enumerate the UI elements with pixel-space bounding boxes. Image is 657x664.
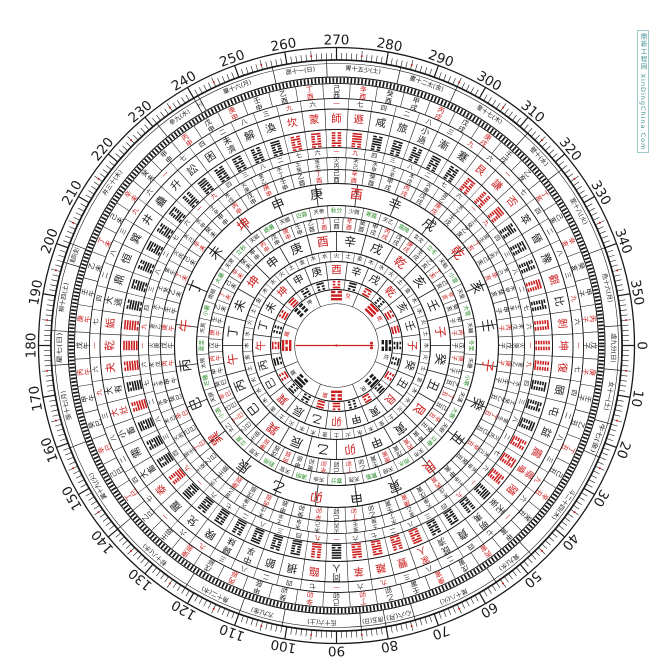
cell-divider [315, 294, 321, 307]
cell-divider [161, 354, 175, 355]
cell-divider [218, 199, 226, 208]
hexagram-name: 需 [129, 445, 145, 460]
jiazi-cell: 子 [498, 342, 506, 348]
cell-divider [604, 369, 621, 370]
tick [177, 585, 181, 590]
mansion-label: 昴十一(日) [285, 65, 315, 77]
cell-divider [253, 335, 271, 337]
tick [103, 169, 108, 173]
guayun-number: 七 [142, 380, 151, 387]
tick [232, 72, 234, 78]
cell-divider [378, 502, 382, 516]
mountain-man: 丑 [424, 377, 442, 393]
tick [505, 577, 509, 582]
cell-divider [114, 266, 133, 273]
tick [126, 544, 131, 549]
guayun-number: 四 [295, 531, 302, 539]
cell-divider [349, 592, 350, 607]
cell-divider [141, 373, 151, 374]
cell-divider [235, 541, 244, 560]
tick [605, 244, 616, 248]
cell-divider [495, 162, 502, 170]
mountain-earth: 壬 [402, 319, 416, 332]
yin-line [539, 321, 542, 331]
mountain-man: 戌 [368, 240, 384, 258]
tick [43, 395, 55, 397]
tick [65, 236, 71, 238]
cell-divider [364, 531, 365, 541]
cell-divider [197, 336, 209, 337]
mountain-heaven: 卯 [309, 487, 324, 504]
cell-divider [559, 262, 569, 266]
element-cell: 土 [333, 432, 339, 440]
cell-divider [307, 436, 312, 455]
cell-divider [330, 252, 331, 262]
yin-line [332, 135, 342, 137]
cell-divider [507, 297, 519, 300]
cell-divider [392, 337, 402, 338]
yin-line [311, 138, 321, 141]
heaven-star: 少微 [348, 207, 360, 216]
degree-label: 250 [217, 47, 247, 71]
yin-line [285, 340, 287, 351]
cell-divider [534, 355, 552, 356]
tick [271, 624, 272, 630]
cell-divider [473, 456, 482, 464]
cell-divider [303, 222, 307, 236]
cell-divider [352, 384, 358, 397]
cell-divider [307, 519, 309, 531]
cell-divider [514, 279, 523, 282]
yin-line [332, 547, 342, 549]
heaven-star: 天命 [312, 475, 324, 484]
cell-divider [194, 126, 202, 139]
tick [285, 52, 287, 64]
tick [78, 197, 88, 203]
jiazi-cell: 卯 [321, 459, 328, 468]
cell-divider [348, 582, 349, 592]
cell-divider [488, 228, 496, 234]
yang-line [332, 550, 342, 552]
cell-divider [403, 532, 409, 549]
tick [619, 390, 625, 391]
tick [133, 135, 138, 140]
cell-divider [528, 501, 540, 510]
guayun-number: 六 [309, 100, 317, 110]
cell-divider [464, 336, 476, 337]
jiazi-cell: 丑 [559, 442, 569, 452]
guayun-number: 一 [333, 583, 340, 591]
cell-divider [506, 261, 515, 265]
tick [568, 174, 573, 178]
yang-line [352, 138, 362, 141]
jiazi-cell: 卯 [333, 460, 339, 468]
cell-divider [244, 150, 252, 166]
yin-line [382, 340, 384, 351]
tick [579, 497, 585, 500]
cell-divider [264, 532, 270, 549]
guayun-number: 三 [446, 127, 456, 137]
cell-divider [309, 471, 311, 483]
hexagram-name: 坤 [557, 340, 570, 351]
guayun-number: 四 [492, 234, 501, 243]
tick-red-dot [502, 582, 504, 584]
degree-label: 180 [24, 333, 40, 359]
cell-divider [516, 133, 527, 146]
cell-divider [194, 553, 202, 566]
cell-divider [546, 398, 566, 403]
tick [145, 561, 149, 566]
guayun-number: 四 [95, 294, 104, 302]
tick-red-dot [625, 370, 627, 372]
tick-red-dot [98, 178, 100, 180]
cell-divider [238, 393, 255, 403]
cell-divider [520, 542, 532, 554]
jiazi-cell: 酉 [321, 224, 328, 232]
tick [559, 161, 564, 165]
cell-divider [495, 521, 502, 529]
cell-divider [462, 318, 474, 320]
yang-line [317, 403, 325, 407]
mountain-earth: 癸 [402, 358, 417, 372]
tick-red-dot [502, 107, 504, 109]
yang-line [332, 557, 342, 559]
hexagram-name: 蹇 [455, 148, 471, 165]
hexagram-name: 姤 [105, 317, 118, 329]
cell-divider [179, 243, 189, 250]
tick [582, 195, 588, 198]
element-cell: 水 [403, 396, 413, 406]
yin-line [311, 556, 321, 559]
tick [91, 501, 96, 505]
cell-divider [235, 507, 240, 516]
cell-divider [347, 109, 348, 129]
guayun-number: 九 [379, 578, 388, 588]
jiazi-cell: 巳 [103, 442, 113, 452]
guayun-number: 一 [574, 342, 582, 349]
cell-divider [567, 434, 581, 439]
hexagram-name: 夬 [104, 361, 118, 373]
hexagram-name: 升 [168, 177, 184, 193]
nayin-cell: 庚 [512, 343, 520, 349]
jiazi-cell: 子 [450, 330, 458, 337]
yin-line [544, 361, 547, 371]
cell-divider [573, 333, 583, 334]
tick [141, 128, 145, 133]
tick-red-dot [616, 420, 618, 422]
yang-line [289, 340, 291, 351]
cell-divider [361, 436, 366, 455]
tick-red-dot [213, 81, 215, 83]
cell-divider [381, 305, 389, 311]
guayun-number: 三 [563, 271, 573, 280]
yin-line [537, 361, 540, 371]
heaven-star: 天棓 [381, 464, 395, 476]
tick [546, 146, 551, 150]
cell-divider [244, 362, 254, 364]
guayun-number: 六 [573, 318, 583, 326]
cell-divider [358, 285, 362, 294]
cell-divider [189, 434, 201, 442]
mountain-heaven: 甲 [349, 487, 364, 504]
mountain-earth: 辛 [349, 264, 363, 279]
guayun-number: 二 [402, 109, 411, 119]
cell-divider [523, 273, 540, 279]
jiazi-cell: 辰 [230, 568, 240, 578]
degree-label: 90 [328, 643, 345, 659]
cell-divider [123, 375, 141, 378]
yin-line [534, 321, 537, 331]
mansion-label: 井三十(木) [100, 168, 124, 197]
yin-line [539, 361, 542, 371]
tick [67, 231, 73, 234]
cell-divider [252, 515, 256, 524]
yin-line [331, 398, 342, 400]
cell-divider [251, 178, 256, 189]
tick-red-dot [72, 467, 74, 469]
cell-divider [421, 524, 429, 540]
cell-divider [388, 320, 397, 324]
cell-divider [213, 375, 227, 379]
guayun-number: 九 [525, 361, 534, 368]
cell-divider [204, 470, 212, 478]
hexagram-name: 剝 [555, 317, 568, 329]
tick [145, 125, 149, 130]
tick [620, 385, 626, 386]
mountain-man: 辛 [343, 234, 357, 249]
yang-line [352, 553, 362, 556]
cell-divider [389, 116, 394, 136]
mountain-heaven: 乾 [447, 244, 467, 263]
cell-divider [327, 206, 328, 218]
element-cell: 水 [377, 263, 386, 273]
cell-divider [418, 393, 435, 403]
hexagram-name: 離 [374, 561, 387, 576]
tick [88, 497, 94, 500]
tick-red-dot [130, 550, 132, 552]
cell-divider [285, 361, 298, 367]
tick [587, 484, 593, 487]
hexagram-name: 比 [552, 295, 567, 308]
tick [492, 100, 496, 105]
cell-divider [493, 260, 504, 265]
degree-label: 120 [169, 596, 199, 623]
cell-divider [522, 373, 532, 374]
guayun-number: 六 [356, 582, 364, 592]
tick [119, 150, 124, 154]
cell-divider [226, 316, 245, 321]
yin-line [535, 341, 537, 351]
tick-red-dot [573, 178, 575, 180]
cell-divider [450, 351, 464, 352]
trigram-name: 震 [321, 391, 328, 399]
tick [406, 623, 408, 629]
hexagram-name: 艮 [472, 162, 488, 178]
tick [430, 69, 432, 75]
tick [137, 555, 141, 560]
cell-divider [570, 380, 580, 382]
mountain-earth: 卯 [331, 415, 342, 427]
cell-divider [316, 219, 318, 233]
tick [218, 78, 221, 84]
cell-divider [155, 297, 167, 300]
mansion-label: 胃十五少(土) [345, 64, 381, 75]
tick [618, 294, 630, 296]
cell-divider [481, 266, 493, 272]
mansion-label: 翼十九(火) [87, 471, 109, 501]
cell-divider [529, 293, 546, 297]
tick [152, 118, 156, 123]
jiazi-cell: 酉 [308, 226, 315, 234]
cell-divider [311, 285, 315, 294]
element-cell: 木 [410, 296, 420, 305]
cell-divider [141, 253, 157, 261]
cell-divider [107, 288, 127, 293]
tick [615, 280, 621, 281]
tick-red-dot [98, 511, 100, 513]
mountain-heaven: 巽 [206, 428, 226, 447]
cell-divider [519, 391, 529, 393]
mountain-heaven: 亥 [467, 279, 486, 297]
mountain-heaven: 子 [478, 358, 495, 373]
tick [46, 380, 52, 381]
tick [589, 208, 595, 211]
cell-divider [330, 459, 331, 473]
jiazi-cell: 午 [214, 330, 223, 337]
tick [56, 443, 67, 447]
cell-divider [257, 490, 263, 502]
cell-divider [532, 314, 550, 317]
cell-divider [570, 309, 580, 311]
tick [119, 537, 124, 541]
yang-line [534, 360, 537, 370]
tick [123, 541, 128, 545]
guayun-number: 八 [154, 268, 163, 276]
cell-divider [180, 266, 192, 272]
degree-label: 50 [521, 567, 544, 590]
cell-divider [498, 442, 507, 447]
degree-label: 150 [59, 483, 86, 513]
mountain-man: 甲 [368, 433, 384, 451]
guayun-number: 一 [468, 204, 477, 213]
cell-divider [209, 351, 223, 352]
heaven-star: 太微 [198, 357, 207, 369]
nayin-cell: 丙 [334, 163, 340, 170]
guayun-number: 七 [309, 582, 317, 592]
tick [137, 132, 141, 137]
tick-red-dot [169, 582, 171, 584]
tick [401, 624, 402, 630]
jiazi-cell: 卯 [345, 459, 352, 468]
cell-divider [449, 112, 456, 125]
degree-label: 0 [634, 341, 650, 350]
cell-divider [476, 213, 483, 220]
yin-line [312, 145, 322, 148]
cell-divider [291, 467, 295, 478]
cell-divider [361, 235, 366, 254]
yin-line [331, 291, 342, 293]
jiazi-cell: 卯 [308, 457, 316, 466]
guayun-number: 八 [510, 415, 519, 423]
tick [574, 182, 579, 186]
tick-red-dot [72, 222, 74, 224]
cell-divider [519, 297, 529, 299]
cell-divider [371, 293, 377, 301]
tick [396, 59, 397, 65]
mountain-earth: 丑 [394, 376, 410, 392]
yin-line [376, 299, 383, 306]
yin-line [544, 320, 547, 330]
mansion-label: 奎十七(木) [475, 103, 504, 126]
tick [50, 405, 56, 406]
cell-divider [493, 300, 507, 304]
cell-divider [550, 311, 570, 314]
tick [76, 213, 82, 216]
cell-divider [243, 351, 253, 352]
tick [160, 112, 164, 117]
guayun-number: 三 [389, 157, 397, 165]
tick [46, 375, 52, 376]
cell-divider [234, 188, 241, 198]
cell-divider [285, 324, 298, 330]
guayun-number: 二 [517, 286, 525, 294]
cell-divider [375, 324, 388, 330]
cell-divider [269, 92, 273, 106]
cell-divider [362, 172, 364, 186]
cell-divider [316, 458, 318, 472]
hexagram-name: 同 [332, 572, 341, 582]
guayun-number: 三 [148, 286, 156, 294]
cell-divider [358, 397, 362, 406]
yang-line [128, 341, 130, 351]
yang-line [331, 294, 342, 296]
cell-divider [138, 198, 146, 204]
jiazi-cell: 酉 [345, 224, 352, 232]
heaven-star: 天帝 [313, 207, 325, 216]
cell-divider [288, 153, 290, 163]
cell-divider [284, 538, 288, 555]
cell-divider [327, 60, 328, 77]
yin-line [312, 548, 322, 551]
mountain-heaven: 辰 [235, 456, 254, 476]
cell-divider [138, 486, 146, 492]
tick [562, 165, 567, 169]
cell-divider [400, 584, 404, 598]
tick [199, 87, 202, 93]
cell-divider [103, 377, 123, 380]
cell-divider [307, 150, 308, 160]
tick [55, 265, 61, 267]
mountain-man: 丙 [231, 377, 249, 393]
cell-divider [276, 320, 285, 324]
yin-line [317, 285, 325, 289]
element-cell: 火 [419, 319, 426, 326]
element-cell: 木 [260, 395, 270, 405]
yin-line [275, 342, 277, 350]
cell-divider [403, 142, 409, 159]
tick [582, 493, 588, 496]
tick [589, 480, 595, 483]
guayun-number: 一 [468, 477, 477, 486]
tick-red-dot [573, 511, 575, 513]
tick [620, 305, 626, 306]
yin-line [394, 357, 398, 365]
cell-divider [210, 134, 215, 143]
guayun-number: 六 [525, 323, 534, 330]
cell-divider [231, 122, 235, 131]
cell-divider [361, 208, 363, 220]
tick [222, 76, 225, 82]
